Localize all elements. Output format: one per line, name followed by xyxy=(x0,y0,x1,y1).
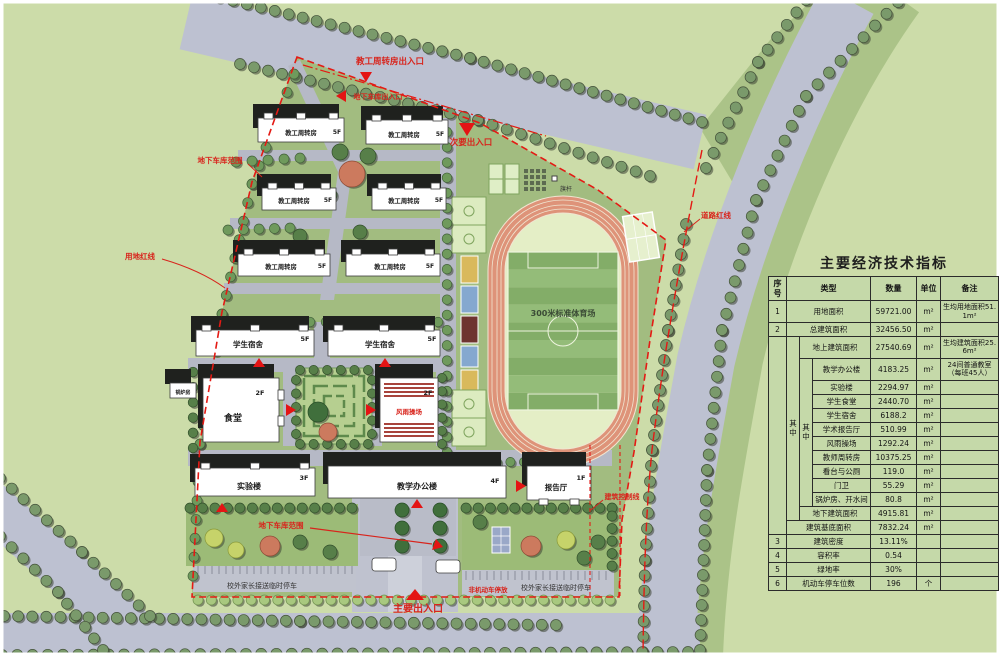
tree-icon xyxy=(498,503,508,513)
canteen-label: 食堂 xyxy=(223,412,242,424)
tree-icon xyxy=(395,36,406,47)
tree-icon xyxy=(697,570,708,581)
indicators-table: 序号 类型 数量 单位 备注 1用地面积 59721.00m² 生均用地面积51… xyxy=(768,276,999,591)
tree-icon xyxy=(272,503,282,513)
tree-icon xyxy=(293,535,307,549)
parking-label-right: 校外家长接送临时停车 xyxy=(521,583,591,592)
secondary-gate-label: 次要出入口 xyxy=(450,137,493,148)
tree-icon xyxy=(437,413,446,422)
tree-icon xyxy=(423,618,434,629)
road-line-label: 道路红线 xyxy=(701,210,731,220)
tree-icon xyxy=(295,153,305,163)
tree-icon xyxy=(607,536,617,546)
tree-icon xyxy=(645,171,656,182)
tree-icon xyxy=(824,67,835,78)
teacher-housing-label: 教工周转房 xyxy=(278,196,309,205)
roof-notch xyxy=(300,463,309,469)
soccer-field xyxy=(508,252,618,410)
tree-icon xyxy=(725,292,736,303)
tree-icon xyxy=(323,365,332,374)
tree-icon xyxy=(351,616,362,627)
tree-icon xyxy=(560,79,571,90)
tree-icon xyxy=(587,152,598,163)
garage-extent-label-2: 地下车库范围 xyxy=(259,520,304,530)
roof-notch xyxy=(280,249,289,255)
tree-icon xyxy=(41,611,52,622)
tree-icon xyxy=(793,105,804,116)
svg-text:5F: 5F xyxy=(301,335,310,343)
tree-icon xyxy=(669,109,680,120)
tree-icon xyxy=(88,557,99,568)
tree-icon xyxy=(559,143,570,154)
tree-icon xyxy=(339,22,350,33)
tree-icon xyxy=(269,5,280,16)
tree-icon xyxy=(707,418,718,429)
table-row: 1用地面积 59721.00m² 生均用地面积51.1m² xyxy=(769,301,999,323)
indicators-title: 主要经济技术指标 xyxy=(768,253,1000,273)
tree-icon xyxy=(442,249,452,259)
svg-text:5F: 5F xyxy=(435,197,443,204)
tree-icon xyxy=(678,234,689,245)
tree-icon xyxy=(353,225,367,239)
tree-icon xyxy=(53,525,64,536)
teaching-label: 教学办公楼 xyxy=(396,481,437,491)
tree-icon xyxy=(573,147,584,158)
roof-notch xyxy=(372,115,381,121)
tree-icon xyxy=(433,503,447,517)
tree-icon xyxy=(847,44,858,55)
tree-icon xyxy=(753,57,764,68)
tree-icon xyxy=(738,243,749,254)
table-row: 5绿地率 30% xyxy=(769,562,999,576)
tree-icon xyxy=(881,8,892,19)
tree-icon xyxy=(602,157,613,168)
tree-icon xyxy=(506,457,515,466)
tree-icon xyxy=(700,510,711,521)
tree-icon xyxy=(297,12,308,23)
tree-icon xyxy=(644,492,655,503)
tree-icon xyxy=(765,165,776,176)
tree-icon xyxy=(205,529,223,547)
tree-icon xyxy=(311,15,322,26)
tree-icon xyxy=(442,341,452,351)
tree-icon xyxy=(182,614,193,625)
tree-icon xyxy=(701,163,712,174)
svg-text:5F: 5F xyxy=(333,129,341,136)
tree-icon xyxy=(252,615,263,626)
tree-icon xyxy=(285,503,295,513)
tree-icon xyxy=(380,617,391,628)
roof-notch xyxy=(297,113,306,119)
tree-icon xyxy=(323,616,334,627)
tree-icon xyxy=(721,308,732,319)
tree-icon xyxy=(335,503,345,513)
tree-icon xyxy=(751,195,762,206)
svg-text:5F: 5F xyxy=(428,335,437,343)
tree-icon xyxy=(505,64,516,75)
tree-icon xyxy=(656,105,667,116)
tree-icon xyxy=(746,211,757,222)
tree-icon xyxy=(715,340,726,351)
svg-text:1F: 1F xyxy=(577,474,586,482)
tree-icon xyxy=(279,154,289,164)
tree-icon xyxy=(336,439,345,448)
tree-icon xyxy=(461,503,471,513)
teacher-housing-label: 教工周转房 xyxy=(388,196,419,205)
tree-icon xyxy=(224,614,235,625)
building-footprint xyxy=(203,378,279,442)
gym-label: 风雨操场 xyxy=(396,407,423,416)
control-line-label: 建筑控制线 xyxy=(605,492,640,501)
tree-icon xyxy=(27,611,38,622)
tree-icon xyxy=(812,79,823,90)
tree-icon xyxy=(228,542,244,558)
tree-icon xyxy=(870,20,881,31)
grandstand xyxy=(461,256,478,390)
tree-icon xyxy=(835,55,846,66)
tree-icon xyxy=(185,503,195,513)
garage-gate-label: 地下车库出入口 xyxy=(354,92,403,101)
tree-icon xyxy=(781,19,792,30)
building-shadow xyxy=(165,369,191,384)
tree-icon xyxy=(53,587,64,598)
parking-label-left: 校外家长接送临时停车 xyxy=(227,581,297,590)
teacher-housing-label: 教工周转房 xyxy=(265,262,296,271)
tree-icon xyxy=(473,503,483,513)
tree-icon xyxy=(297,503,307,513)
tree-icon xyxy=(263,155,273,165)
col-qty: 数量 xyxy=(871,277,917,301)
tree-icon xyxy=(558,503,568,513)
tree-icon xyxy=(235,503,245,513)
tree-icon xyxy=(521,536,541,556)
tree-icon xyxy=(263,65,274,76)
tree-icon xyxy=(705,433,716,444)
main-gate-label: 主要出入口 xyxy=(393,602,443,615)
tree-icon xyxy=(122,589,133,600)
tree-icon xyxy=(516,129,527,140)
tree-icon xyxy=(99,568,110,579)
col-note: 备注 xyxy=(941,277,999,301)
tree-icon xyxy=(395,521,409,535)
tree-icon xyxy=(188,398,198,408)
tree-icon xyxy=(223,225,233,235)
tree-icon xyxy=(283,9,294,20)
tree-icon xyxy=(266,615,277,626)
flagpole-label: 旗杆 xyxy=(560,185,572,193)
hall-label: 报告厅 xyxy=(545,482,568,492)
tree-icon xyxy=(442,219,452,229)
tree-icon xyxy=(111,579,122,590)
tree-icon xyxy=(730,102,741,113)
tree-icon xyxy=(697,585,708,596)
tree-icon xyxy=(437,400,446,409)
svg-text:5F: 5F xyxy=(426,263,434,270)
tree-icon xyxy=(323,545,337,559)
tree-icon xyxy=(522,503,532,513)
gatehouse-footprint xyxy=(372,558,396,571)
tree-icon xyxy=(310,503,320,513)
tree-icon xyxy=(423,42,434,53)
tree-icon xyxy=(858,32,869,43)
tree-icon xyxy=(442,356,452,366)
tree-icon xyxy=(437,373,446,382)
tree-icon xyxy=(433,521,447,535)
tree-icon xyxy=(519,68,530,79)
tree-icon xyxy=(239,225,249,235)
tree-icon xyxy=(363,365,372,374)
tree-icon xyxy=(442,264,452,274)
tree-icon xyxy=(280,615,291,626)
tree-icon xyxy=(255,2,266,13)
roof-notch xyxy=(315,249,324,255)
tree-icon xyxy=(325,19,336,30)
tree-icon xyxy=(41,515,52,526)
roof-notch xyxy=(389,249,398,255)
roof-notch xyxy=(378,183,387,189)
tree-icon xyxy=(408,617,419,628)
basketball-courts-south xyxy=(452,390,486,446)
flagpole-icon xyxy=(552,176,557,181)
site-line-label: 用地红线 xyxy=(125,251,155,261)
tree-icon xyxy=(630,166,641,177)
tree-icon xyxy=(29,564,40,575)
tree-icon xyxy=(111,612,122,623)
tree-icon xyxy=(13,611,24,622)
tree-icon xyxy=(779,135,790,146)
tree-icon xyxy=(41,575,52,586)
tree-icon xyxy=(607,524,617,534)
roof-notch xyxy=(352,249,361,255)
tree-icon xyxy=(145,611,156,622)
housing-gate-label: 教工周转房出入口 xyxy=(355,56,424,67)
tree-icon xyxy=(442,310,452,320)
tree-icon xyxy=(333,82,344,93)
tree-icon xyxy=(437,618,448,629)
tree-icon xyxy=(465,53,476,64)
tree-icon xyxy=(530,133,541,144)
tree-icon xyxy=(607,549,617,559)
tree-icon xyxy=(226,272,236,282)
svg-text:2F: 2F xyxy=(424,389,433,397)
tree-icon xyxy=(628,98,639,109)
tree-icon xyxy=(683,113,694,124)
tree-icon xyxy=(55,611,66,622)
tree-icon xyxy=(772,32,783,43)
tree-icon xyxy=(451,618,462,629)
tree-icon xyxy=(712,371,723,382)
tree-icon xyxy=(89,633,100,644)
merge-cell: 其中 xyxy=(800,358,813,506)
teacher-housing-label: 教工周转房 xyxy=(285,128,316,137)
tree-icon xyxy=(350,365,359,374)
tree-icon xyxy=(18,553,29,564)
tree-icon xyxy=(715,132,726,143)
tree-icon xyxy=(97,612,108,623)
tree-icon xyxy=(451,49,462,60)
tree-icon xyxy=(308,402,328,422)
tree-icon xyxy=(494,619,505,630)
tree-icon xyxy=(6,483,17,494)
tree-icon xyxy=(367,429,376,438)
tree-icon xyxy=(442,295,452,305)
tree-icon xyxy=(546,75,557,86)
tree-icon xyxy=(336,365,345,374)
roof-notch xyxy=(201,463,210,469)
tree-icon xyxy=(510,503,520,513)
col-unit: 单位 xyxy=(917,277,941,301)
tree-icon xyxy=(133,600,144,611)
table-header-row: 序号 类型 数量 单位 备注 xyxy=(769,277,999,301)
tree-icon xyxy=(465,618,476,629)
tree-icon xyxy=(557,531,575,549)
tree-icon xyxy=(363,439,372,448)
roof-notch xyxy=(425,249,434,255)
bike-parking-grid xyxy=(492,527,510,553)
roof-notch xyxy=(403,115,412,121)
tree-icon xyxy=(492,60,503,71)
roof-notch xyxy=(278,416,284,426)
tree-icon xyxy=(71,610,82,621)
tree-icon xyxy=(697,117,708,128)
roof-notch xyxy=(244,249,253,255)
table-row: 3建筑密度 13.11% xyxy=(769,534,999,548)
tree-icon xyxy=(729,276,740,287)
roof-notch xyxy=(431,183,440,189)
tree-icon xyxy=(65,536,76,547)
tree-icon xyxy=(699,540,710,551)
tree-icon xyxy=(339,161,365,187)
tree-icon xyxy=(260,536,280,556)
roof-notch xyxy=(278,390,284,400)
tree-icon xyxy=(291,389,300,398)
tree-icon xyxy=(742,227,753,238)
svg-text:3F: 3F xyxy=(300,474,309,482)
tree-icon xyxy=(479,618,490,629)
tree-icon xyxy=(360,148,376,164)
tree-icon xyxy=(277,68,288,79)
tree-icon xyxy=(485,503,495,513)
merge-cell: 其中 xyxy=(787,336,800,520)
roof-notch xyxy=(329,113,338,119)
table-row: 2总建筑面积 32456.50m² xyxy=(769,322,999,336)
tree-icon xyxy=(350,439,359,448)
tree-icon xyxy=(188,443,198,453)
tree-icon xyxy=(616,161,627,172)
svg-text:5F: 5F xyxy=(318,263,326,270)
tree-icon xyxy=(577,551,591,565)
tree-icon xyxy=(723,117,734,128)
roof-notch xyxy=(299,325,308,331)
tree-icon xyxy=(700,495,711,506)
tree-icon xyxy=(285,223,295,233)
tree-icon xyxy=(409,39,420,50)
tree-icon xyxy=(210,614,221,625)
tree-icon xyxy=(295,439,304,448)
gatehouse-footprint xyxy=(436,560,460,573)
tree-icon xyxy=(437,46,448,57)
roof-notch xyxy=(321,183,330,189)
roof-notch xyxy=(570,499,579,505)
tree-icon xyxy=(699,525,710,536)
tree-icon xyxy=(254,224,264,234)
table-row: 地下建筑面积4915.81 m² xyxy=(769,506,999,520)
tree-icon xyxy=(642,101,653,112)
tree-icon xyxy=(437,387,446,396)
tree-icon xyxy=(595,503,605,513)
tree-icon xyxy=(801,91,812,102)
svg-text:5F: 5F xyxy=(436,131,444,138)
table-row: 其中 教学办公楼4183.25 m²24间普通教室（每班45人） xyxy=(769,358,999,380)
tree-icon xyxy=(332,144,348,160)
site-plan-canvas: 教工周转房 5F 教工周转房 5F 教工周转房 5F 教工周转房 5F 教工周转… xyxy=(0,0,1000,656)
tree-icon xyxy=(6,542,17,553)
tree-icon xyxy=(607,561,617,571)
tree-icon xyxy=(478,56,489,67)
tree-icon xyxy=(696,600,707,611)
tree-icon xyxy=(791,7,802,18)
tree-icon xyxy=(670,279,681,290)
roof-notch xyxy=(295,183,304,189)
tree-icon xyxy=(442,234,452,244)
tree-icon xyxy=(708,147,719,158)
tree-icon xyxy=(188,428,198,438)
tree-icon xyxy=(291,429,300,438)
tree-icon xyxy=(291,375,300,384)
tree-icon xyxy=(710,387,721,398)
tree-icon xyxy=(601,90,612,101)
dorm-label: 学生宿舍 xyxy=(365,339,395,349)
tree-icon xyxy=(643,507,654,518)
svg-text:4F: 4F xyxy=(491,477,500,485)
tree-icon xyxy=(544,138,555,149)
tree-icon xyxy=(80,621,91,632)
tree-icon xyxy=(322,503,332,513)
tree-icon xyxy=(695,630,706,641)
tree-icon xyxy=(442,173,452,183)
tree-icon xyxy=(615,94,626,105)
tree-icon xyxy=(786,120,797,131)
tree-icon xyxy=(188,413,198,423)
teacher-housing-label: 教工周转房 xyxy=(388,130,419,139)
tree-icon xyxy=(337,616,348,627)
tree-icon xyxy=(125,613,136,624)
tree-icon xyxy=(508,619,519,630)
table-row: 建筑基底面积7832.24 m² xyxy=(769,520,999,534)
roof-notch xyxy=(268,183,277,189)
col-type: 类型 xyxy=(787,277,871,301)
tree-icon xyxy=(353,26,364,37)
tree-icon xyxy=(533,71,544,82)
tree-icon xyxy=(591,535,605,549)
tree-icon xyxy=(309,439,318,448)
tree-icon xyxy=(235,59,246,70)
tree-icon xyxy=(319,423,337,441)
table-row: 其中 地上建筑面积27540.69 m²生均建筑面积25.6m² xyxy=(769,336,999,358)
tree-icon xyxy=(762,44,773,55)
svg-text:2F: 2F xyxy=(256,389,265,397)
tree-icon xyxy=(18,494,29,505)
tennis-court-east xyxy=(623,212,660,262)
tree-icon xyxy=(702,465,713,476)
teacher-housing-label: 教工周转房 xyxy=(374,262,405,271)
tree-icon xyxy=(442,280,452,290)
tree-icon xyxy=(249,62,260,73)
tree-icon xyxy=(587,86,598,97)
tree-icon xyxy=(696,615,707,626)
tree-icon xyxy=(442,158,452,168)
tree-icon xyxy=(289,69,299,79)
